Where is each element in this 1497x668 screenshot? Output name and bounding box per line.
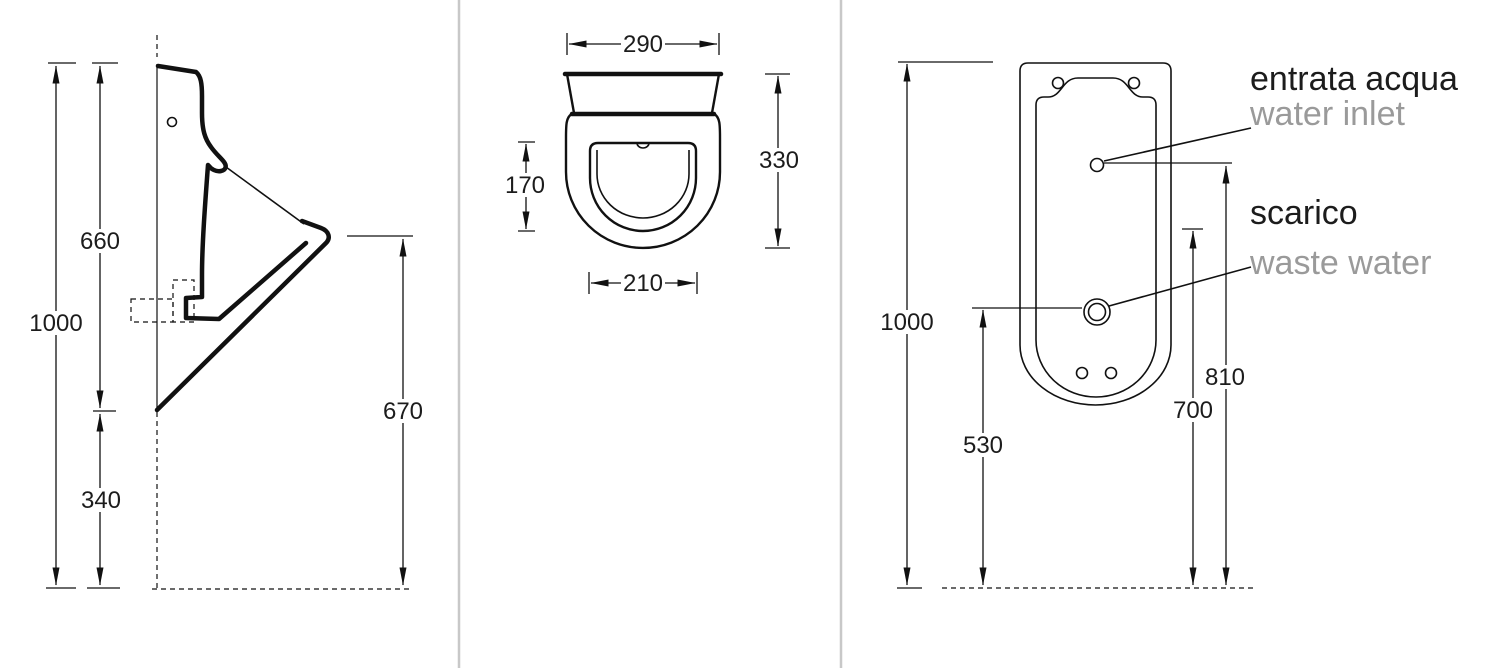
lower-hole-right — [1106, 368, 1117, 379]
lower-hole-left — [1077, 368, 1088, 379]
annotation-inlet-italian: entrata acqua — [1250, 60, 1458, 98]
rear-inner-outline — [1036, 78, 1156, 397]
dim-overall-height: 1000 — [880, 309, 933, 336]
top-view-bowl-inner-line — [597, 150, 689, 218]
fixing-hole — [168, 118, 177, 127]
rear-view: 1000 530 700 810 entrata acqua water inl… — [879, 60, 1458, 588]
technical-drawing-page: 1000 660 340 670 290 1 — [0, 0, 1497, 668]
dim-overall-height: 1000 — [29, 310, 82, 337]
rear-outer-outline — [1020, 63, 1171, 405]
side-profile-spout-and-apron — [157, 221, 329, 410]
leader-waste-water — [1109, 267, 1251, 306]
waste-outlet-inner — [1089, 304, 1106, 321]
mounting-hole-right — [1129, 78, 1140, 89]
side-profile-bowl-and-drain — [186, 165, 306, 319]
side-section-view: 1000 660 340 670 — [28, 35, 425, 589]
annotation-waste-english: waste water — [1249, 244, 1431, 282]
dim-inlet-height: 810 — [1205, 364, 1245, 391]
dim-top-width: 290 — [623, 31, 663, 58]
annotation-waste-italian: scarico — [1250, 194, 1358, 232]
dim-upper-height: 660 — [80, 228, 120, 255]
dim-bowl-width: 210 — [623, 270, 663, 297]
waste-pipe-hidden-outline — [131, 299, 173, 322]
dim-lower-height: 340 — [81, 487, 121, 514]
top-view: 290 170 330 210 — [503, 31, 801, 297]
annotation-inlet-english: water inlet — [1249, 95, 1406, 133]
dim-bowl-depth: 170 — [505, 172, 545, 199]
mounting-hole-left — [1053, 78, 1064, 89]
trap-hidden-outline — [173, 280, 194, 322]
top-view-flange-left-edge — [567, 74, 574, 113]
apron-top-edge — [226, 167, 304, 224]
dim-mid-height: 700 — [1173, 397, 1213, 424]
water-inlet-hole — [1091, 159, 1104, 172]
dim-total-depth: 330 — [759, 147, 799, 174]
dim-waste-height: 530 — [963, 432, 1003, 459]
top-view-flange-right-edge — [712, 74, 719, 113]
dim-lip-height: 670 — [383, 398, 423, 425]
leader-water-inlet — [1104, 128, 1251, 161]
urinal-dimension-drawing: 1000 660 340 670 290 1 — [0, 0, 1497, 668]
